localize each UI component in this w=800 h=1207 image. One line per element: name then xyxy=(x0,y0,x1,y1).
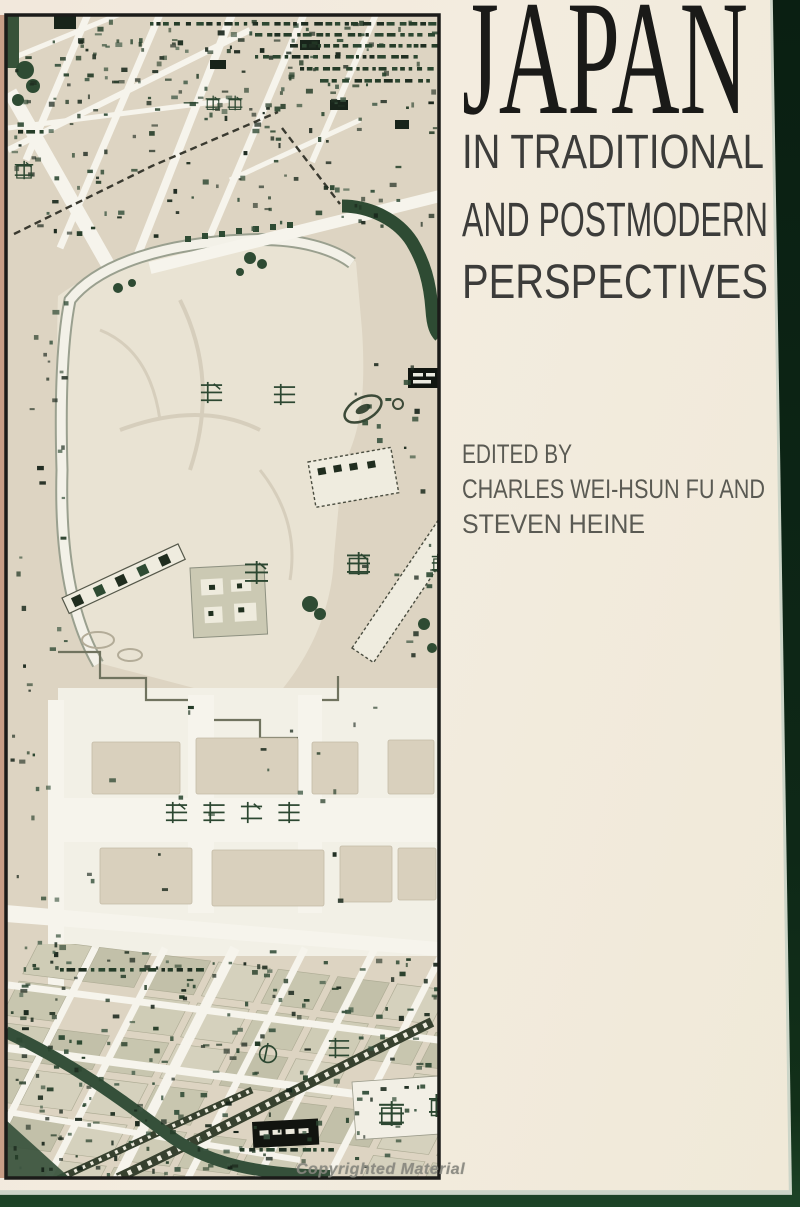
map-label-marunouchi-2 xyxy=(329,1038,349,1058)
map-label-chiyoda-1 xyxy=(245,561,268,584)
map-label-tokyo-1 xyxy=(379,1101,404,1126)
map-label-edge-char xyxy=(432,554,450,572)
map-label-kokyo-2 xyxy=(274,384,295,405)
copyright-watermark: Copyrighted Material xyxy=(296,1161,496,1179)
book-cover-photo: { "book_cover": { "title": "JAPAN", "sub… xyxy=(0,0,800,1207)
map-content xyxy=(0,14,628,1207)
station-label-box xyxy=(252,1119,319,1148)
map-label-box-right xyxy=(408,368,442,388)
map-label-kokyo-1 xyxy=(201,382,222,403)
map-label-chiyoda-2 xyxy=(347,552,370,575)
tokyo-map-image xyxy=(0,0,800,1207)
